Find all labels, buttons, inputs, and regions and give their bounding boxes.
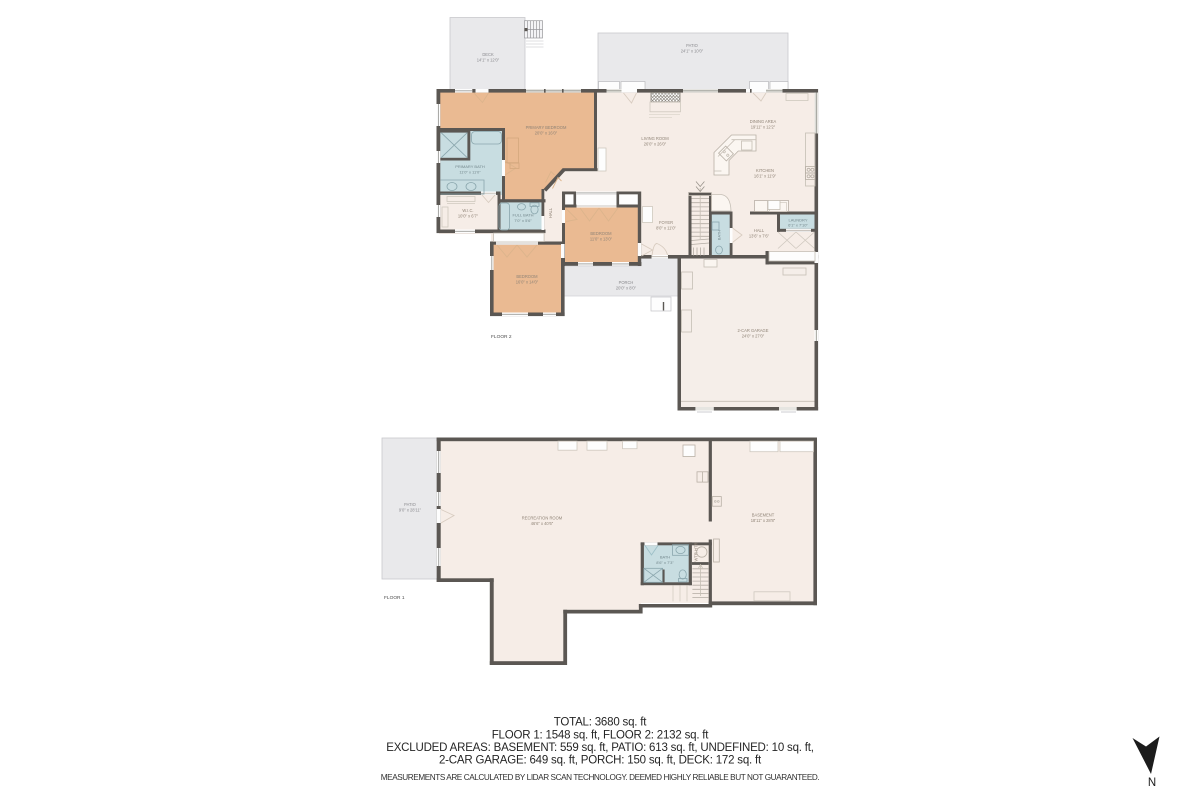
svg-text:FLOOR 1: 1548 sq. ft, FLOOR 2:: FLOOR 1: 1548 sq. ft, FLOOR 2: 2132 sq. … [492,729,710,741]
svg-text:8'0" x 11'0": 8'0" x 11'0" [656,226,676,231]
svg-text:2-CAR GARAGE: 649 sq. ft, PORC: 2-CAR GARAGE: 649 sq. ft, PORCH: 150 sq.… [439,755,762,767]
svg-text:16'0" x 14'0": 16'0" x 14'0" [516,280,539,285]
svg-text:8'6" x 7'3": 8'6" x 7'3" [656,560,674,565]
svg-text:16'1" x 11'9": 16'1" x 11'9" [754,174,777,179]
svg-text:11'0" x 11'0": 11'0" x 11'0" [459,170,481,175]
svg-text:BATH: BATH [717,230,722,240]
svg-text:26'0" x 26'0": 26'0" x 26'0" [644,142,667,147]
svg-text:DECK: DECK [482,52,494,57]
svg-text:WTR HTR: WTR HTR [694,543,699,562]
svg-text:PORCH: PORCH [619,280,634,285]
svg-text:46'6" x 40'6": 46'6" x 40'6" [531,521,554,526]
svg-text:PRIMARY BATH: PRIMARY BATH [455,164,485,169]
svg-text:18'11" x 28'8": 18'11" x 28'8" [751,518,776,523]
svg-text:FOYER: FOYER [659,220,673,225]
svg-text:11'0" x 13'0": 11'0" x 13'0" [590,237,613,242]
svg-text:DINING AREA: DINING AREA [750,119,777,124]
svg-text:N: N [1148,777,1156,789]
svg-text:W.I.C.: W.I.C. [462,208,473,213]
svg-text:HALL: HALL [754,228,765,233]
svg-text:6'1" x 7'10": 6'1" x 7'10" [788,223,808,228]
svg-text:KITCHEN: KITCHEN [756,168,774,173]
svg-text:2-CAR GARAGE: 2-CAR GARAGE [738,328,769,333]
svg-text:BEDROOM: BEDROOM [516,274,538,279]
svg-text:FULL BATH: FULL BATH [512,213,533,218]
svg-text:BASEMENT: BASEMENT [752,513,775,518]
svg-text:20'0" x 16'0": 20'0" x 16'0" [535,131,558,136]
svg-text:RECREATION ROOM: RECREATION ROOM [522,516,563,521]
svg-text:FLOOR 1: FLOOR 1 [384,595,405,601]
svg-text:EXCLUDED AREAS: BASEMENT: 559: EXCLUDED AREAS: BASEMENT: 559 sq. ft, PA… [386,742,814,754]
svg-text:MEASUREMENTS ARE CALCULATED BY: MEASUREMENTS ARE CALCULATED BY LIDAR SCA… [381,773,820,782]
svg-text:19'11" x 12'2": 19'11" x 12'2" [751,125,776,130]
svg-text:24'1" x 10'0": 24'1" x 10'0" [681,49,704,54]
svg-text:BEDROOM: BEDROOM [590,231,612,236]
svg-text:LIVING ROOM: LIVING ROOM [641,136,669,141]
svg-text:PATIO: PATIO [686,43,698,48]
svg-text:13'6" x 7'6": 13'6" x 7'6" [749,234,770,239]
svg-text:TOTAL: 3680 sq. ft: TOTAL: 3680 sq. ft [554,717,647,729]
svg-text:10'0" x 6'7": 10'0" x 6'7" [458,214,479,219]
svg-text:14'1" x 12'0": 14'1" x 12'0" [477,58,500,63]
svg-text:HALL: HALL [548,207,553,218]
svg-text:9'0" x 28'11": 9'0" x 28'11" [399,508,422,513]
svg-text:FLOOR 2: FLOOR 2 [491,334,512,340]
svg-text:20'0" x 8'0": 20'0" x 8'0" [616,286,637,291]
svg-text:24'0" x 27'0": 24'0" x 27'0" [742,334,765,339]
svg-text:BATH: BATH [660,555,670,560]
svg-text:PATIO: PATIO [404,502,416,507]
svg-text:7'0" x 5'6": 7'0" x 5'6" [514,218,532,223]
svg-text:PRIMARY BEDROOM: PRIMARY BEDROOM [526,125,567,130]
